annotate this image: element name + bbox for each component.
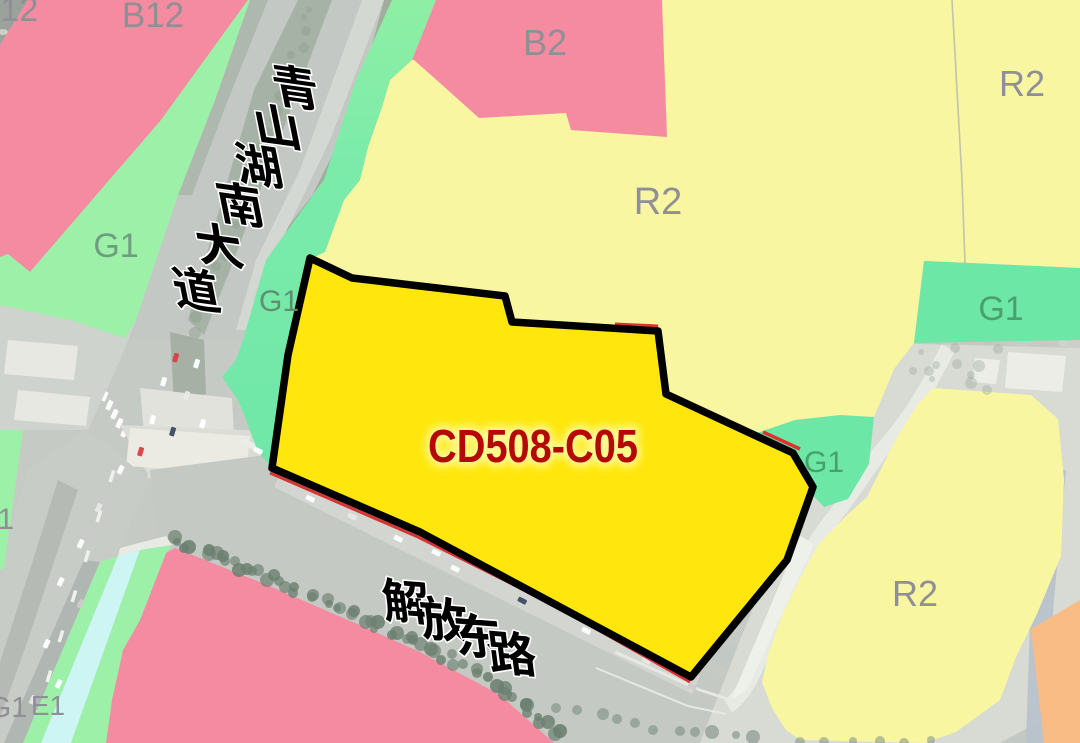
svg-text:E1: E1 — [31, 690, 65, 721]
svg-text:G1: G1 — [0, 692, 27, 724]
svg-text:R2: R2 — [634, 181, 683, 223]
svg-text:G1: G1 — [0, 503, 14, 536]
svg-text:G1: G1 — [804, 446, 844, 479]
svg-text:G1: G1 — [259, 285, 299, 318]
svg-text:B2: B2 — [523, 22, 567, 63]
svg-text:B12: B12 — [0, 0, 38, 29]
svg-text:G1: G1 — [93, 227, 138, 265]
svg-text:B12: B12 — [122, 0, 184, 35]
svg-text:R2: R2 — [999, 63, 1045, 104]
svg-text:R2: R2 — [892, 573, 938, 614]
svg-text:CD508-C05: CD508-C05 — [428, 420, 638, 472]
svg-text:G1: G1 — [978, 290, 1023, 328]
